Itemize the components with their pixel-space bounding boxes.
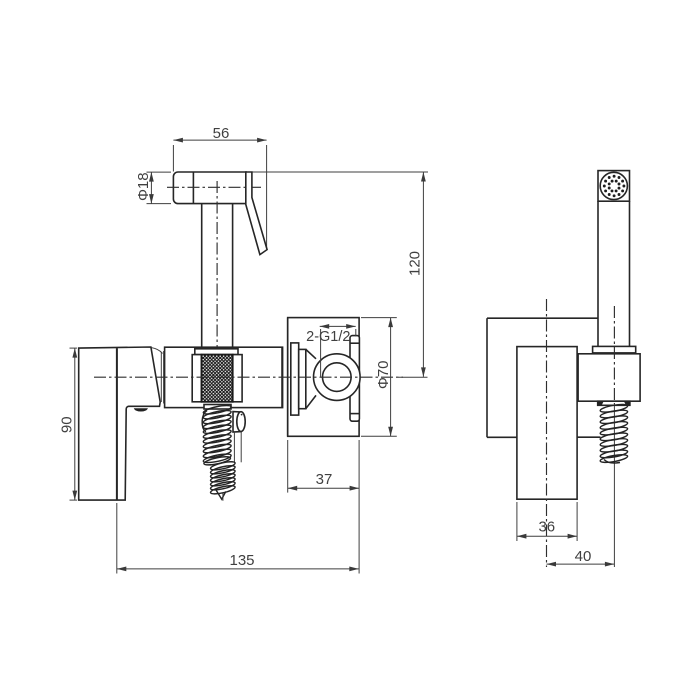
- svg-text:120: 120: [406, 251, 423, 276]
- svg-text:37: 37: [316, 471, 333, 488]
- svg-text:56: 56: [213, 125, 230, 142]
- svg-text:135: 135: [229, 552, 254, 569]
- svg-text:2-G1/2: 2-G1/2: [306, 329, 350, 345]
- svg-text:40: 40: [575, 548, 592, 565]
- svg-text:90: 90: [58, 416, 75, 433]
- svg-text:Φ18: Φ18: [135, 172, 152, 201]
- svg-text:Φ70: Φ70: [375, 360, 392, 389]
- svg-text:36: 36: [538, 519, 555, 536]
